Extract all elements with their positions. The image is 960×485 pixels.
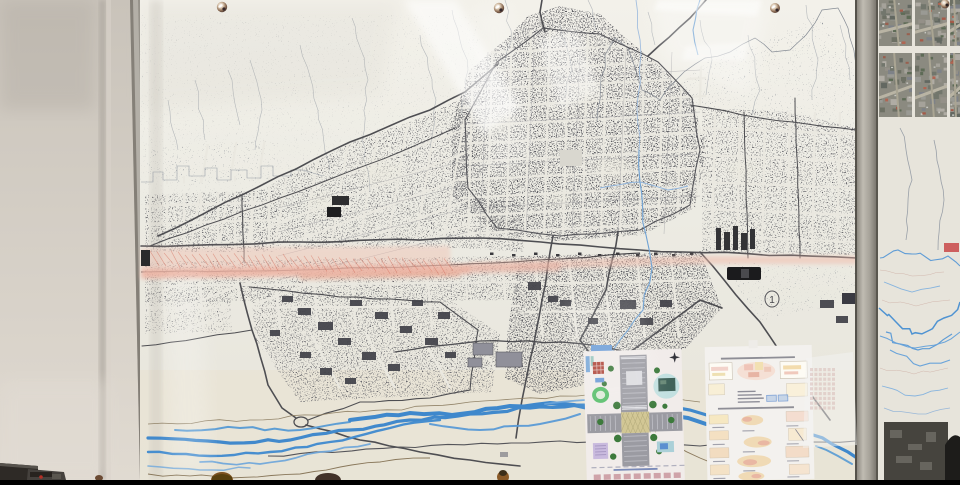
svg-text:1: 1 [769,295,775,306]
